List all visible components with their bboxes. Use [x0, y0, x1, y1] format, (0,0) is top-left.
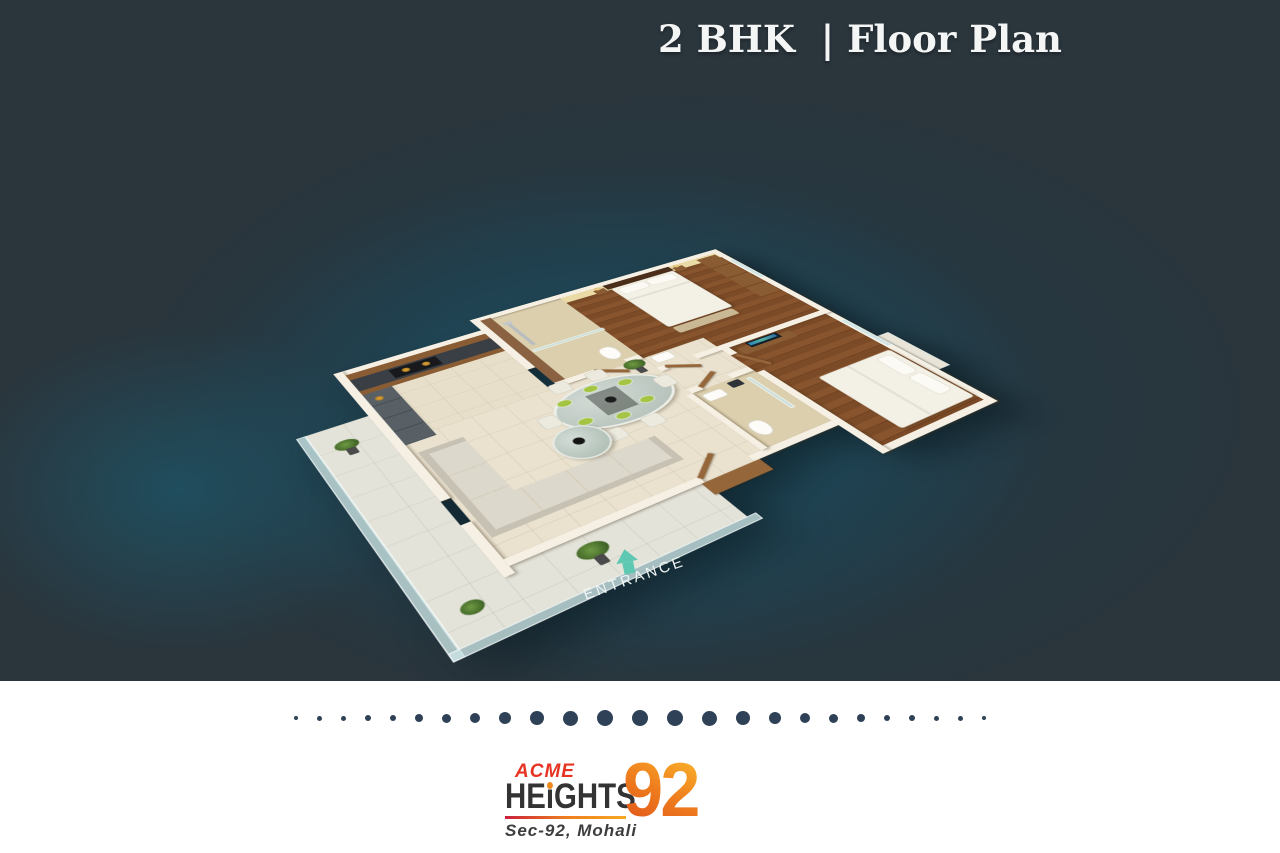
logo-heights: HEıGHTS — [505, 777, 636, 817]
dot — [341, 716, 346, 721]
entrance-marker: ENTRANCE — [578, 543, 748, 633]
dot — [294, 716, 298, 720]
footer-section: ACME HEıGHTS 92 Sec-92, Mohali — [0, 681, 1280, 853]
dots-divider — [0, 708, 1280, 728]
page-title: 2 BHK | Floor Plan — [600, 16, 1120, 62]
dot — [702, 711, 717, 726]
dot — [934, 716, 939, 721]
brand-logo: ACME HEıGHTS 92 Sec-92, Mohali — [505, 761, 765, 853]
logo-heights-i: ı — [546, 777, 554, 817]
dot — [470, 713, 480, 723]
logo-number-92: 92 — [623, 753, 698, 829]
dot — [736, 711, 750, 725]
dot — [442, 714, 451, 723]
dot — [390, 715, 396, 721]
dot — [317, 716, 322, 721]
dot — [909, 715, 915, 721]
logo-underline — [505, 816, 626, 819]
dot — [857, 714, 865, 722]
hero-section: 2 BHK | Floor Plan — [0, 0, 1280, 681]
dot — [829, 714, 838, 723]
dot — [769, 712, 781, 724]
logo-heights-he: HE — [505, 777, 546, 816]
dot — [530, 711, 544, 725]
dot — [499, 712, 511, 724]
dot — [958, 716, 963, 721]
dot — [982, 716, 986, 720]
dot — [415, 714, 423, 722]
dot — [800, 713, 810, 723]
logo-subtitle: Sec-92, Mohali — [505, 821, 637, 841]
dot — [563, 711, 578, 726]
dot — [597, 710, 613, 726]
dot — [632, 710, 648, 726]
dot — [365, 715, 371, 721]
dot — [667, 710, 683, 726]
dot — [884, 715, 890, 721]
